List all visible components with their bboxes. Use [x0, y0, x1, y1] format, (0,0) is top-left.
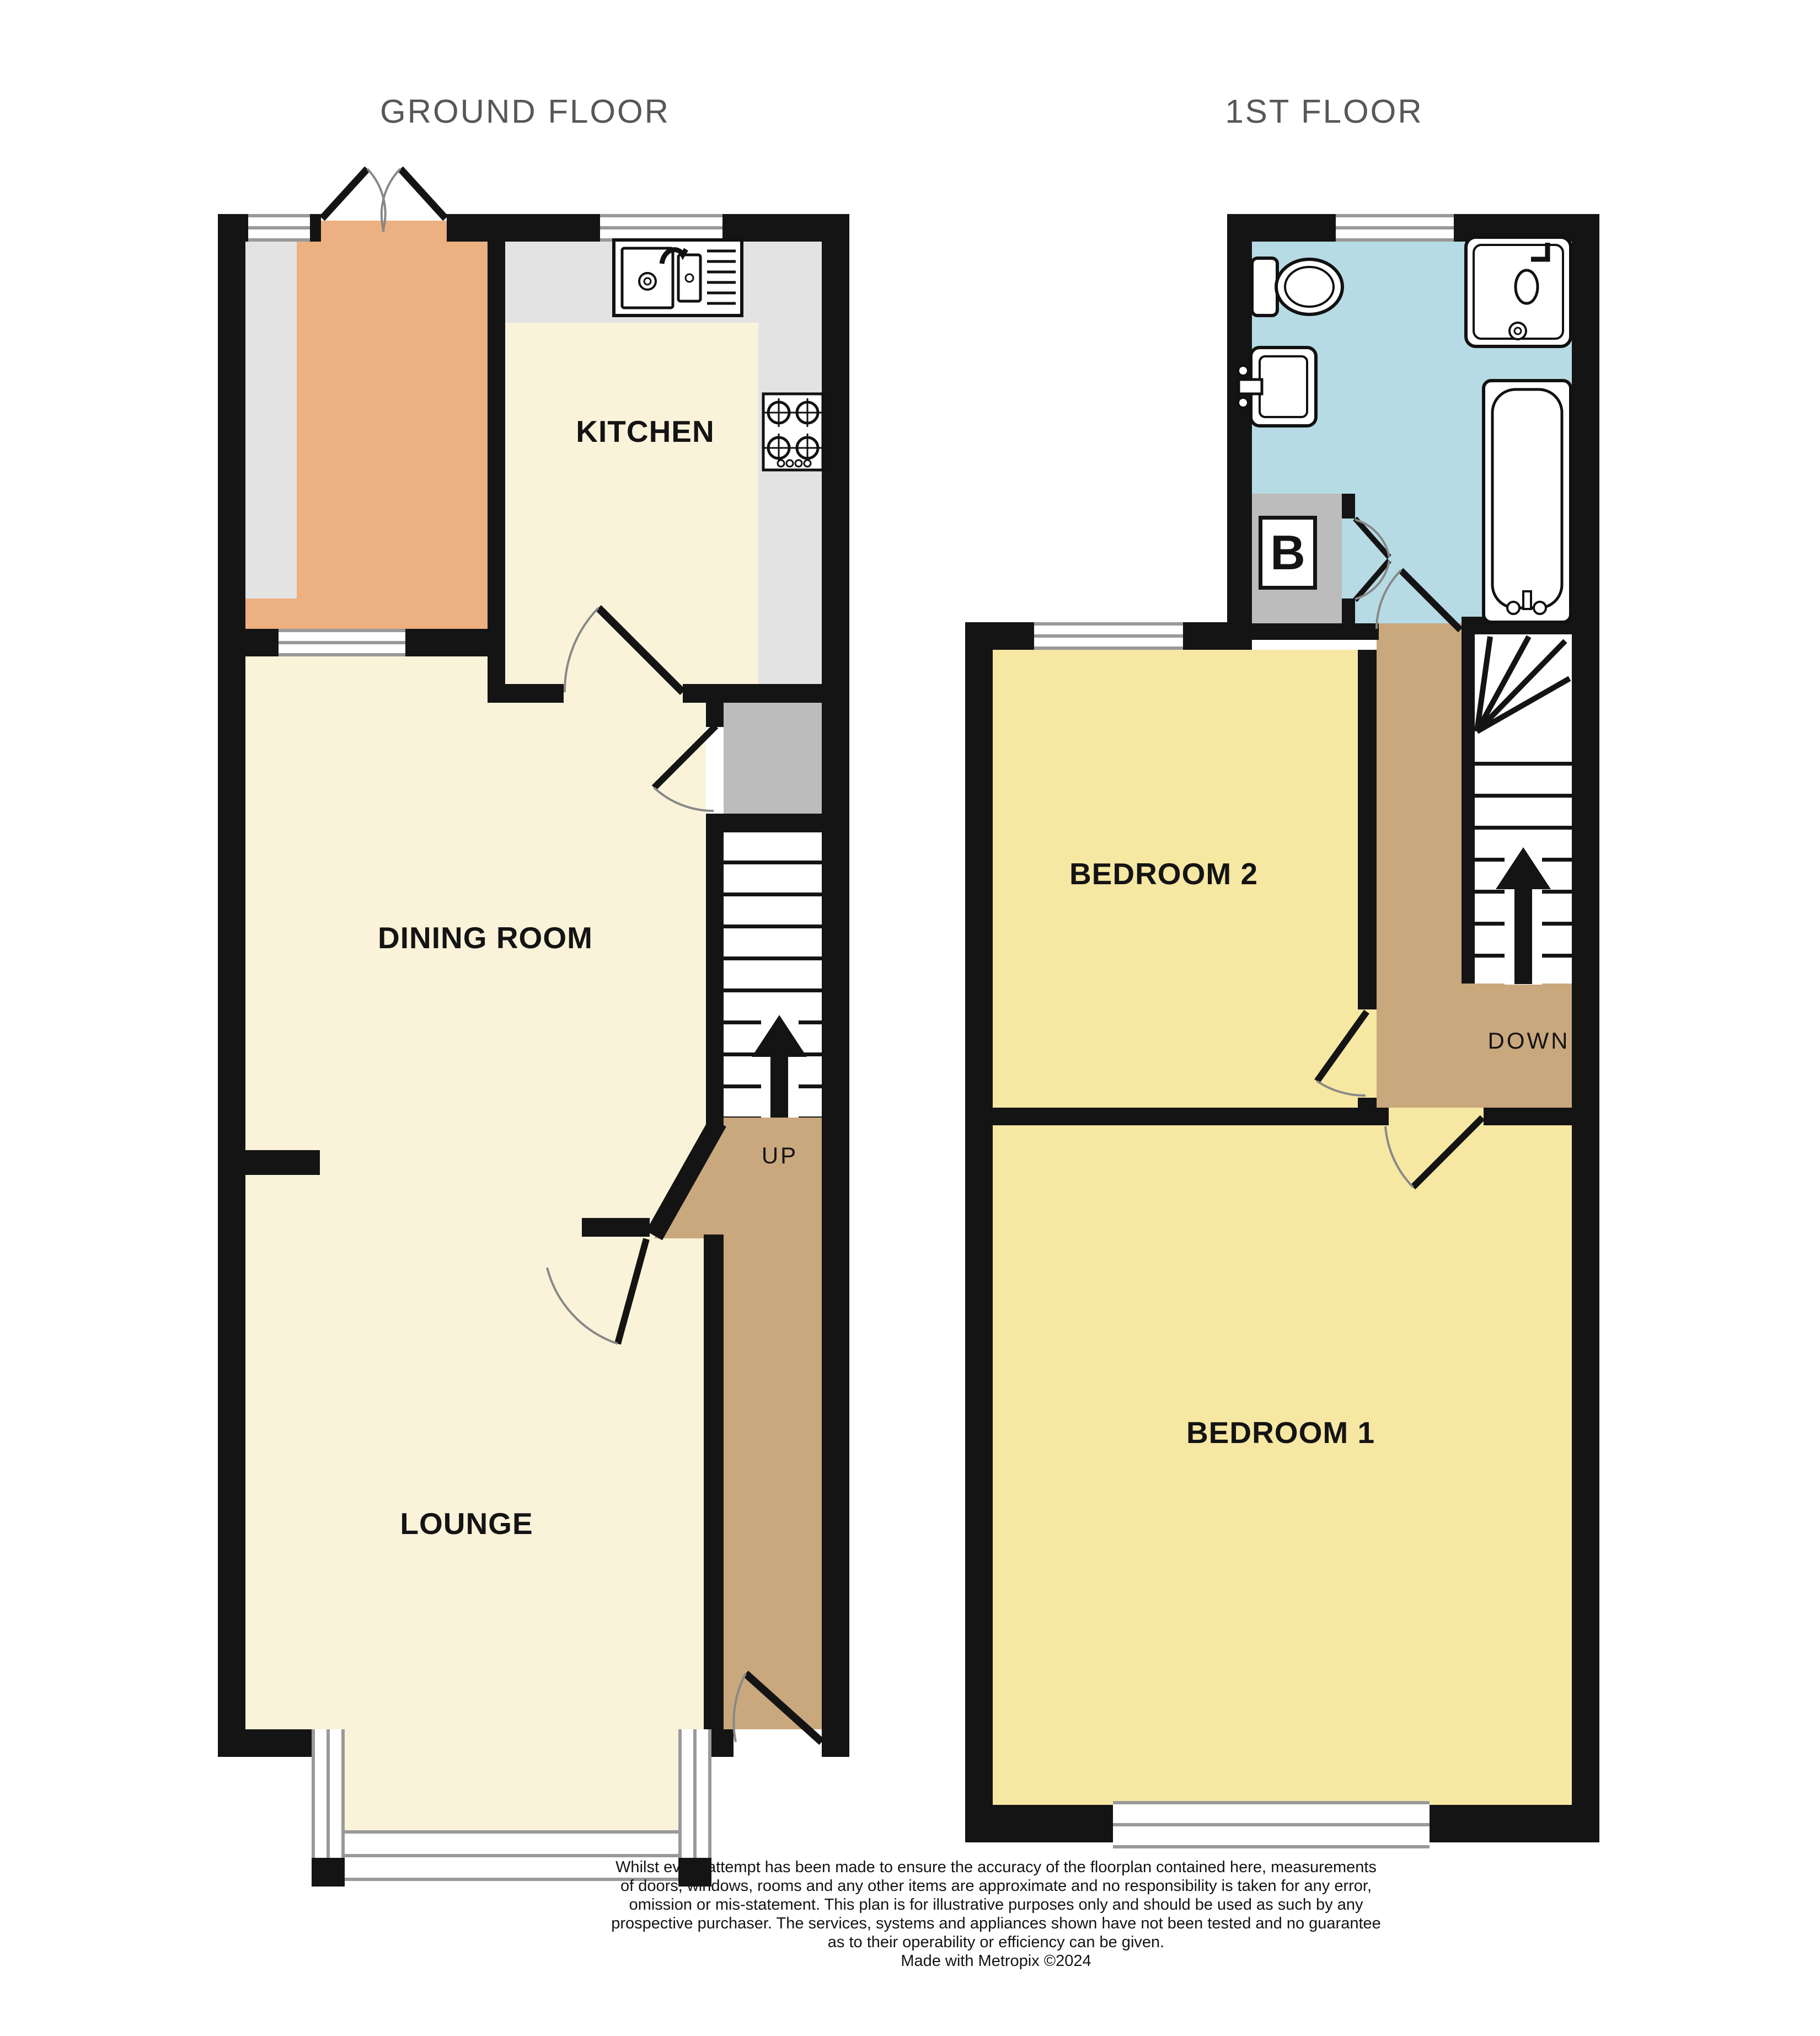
wall [582, 1218, 650, 1237]
bedroom2-doorway [1358, 1009, 1377, 1098]
down-arrow-icon [1496, 847, 1551, 889]
bay-corner [312, 1858, 345, 1887]
window [1113, 1801, 1430, 1848]
bay-window-floor [312, 1729, 678, 1831]
wall [706, 814, 822, 832]
wall [1358, 650, 1377, 1009]
disclaimer-line: prospective purchaser. The services, sys… [611, 1914, 1381, 1933]
wall [1342, 494, 1355, 519]
disclaimer-line: of doors, windows, rooms and any other i… [611, 1877, 1381, 1895]
dining-room-label: DINING ROOM [378, 920, 593, 955]
lounge-floor [245, 1175, 704, 1729]
winder-stairs-floor [1475, 634, 1572, 734]
kitchen-counter-top [505, 242, 822, 323]
disclaimer-line: Made with Metropix ©2024 [611, 1952, 1381, 1970]
boiler-badge: B [1259, 516, 1317, 590]
porch-door-threshold [321, 221, 447, 242]
bedroom1-doorway [1389, 1108, 1484, 1125]
bay-window-right-frame [678, 1729, 711, 1858]
door-swing-icon [734, 1674, 822, 1742]
wall [965, 1805, 1113, 1842]
wall [1484, 1108, 1572, 1125]
wall [822, 214, 849, 1757]
wall [1462, 617, 1572, 634]
kitchen-label: KITCHEN [576, 414, 714, 449]
lounge-label: LOUNGE [400, 1506, 533, 1541]
disclaimer-line: Whilst every attempt has been made to en… [611, 1858, 1381, 1877]
wall [1430, 1805, 1599, 1842]
window [600, 214, 722, 242]
up-arrow-icon [752, 1015, 807, 1057]
bedroom1-floor [993, 1125, 1572, 1805]
wall [683, 684, 849, 703]
bedroom2-label: BEDROOM 2 [1069, 856, 1258, 891]
down-arrow-shaft [1514, 887, 1532, 984]
up-arrow-shaft [770, 1055, 788, 1119]
landing-floor [1377, 623, 1462, 984]
understairs-cupboard-floor [724, 703, 822, 814]
porch-counter [245, 242, 297, 598]
window [248, 214, 310, 242]
wall [1342, 598, 1355, 623]
bedroom1-label: BEDROOM 1 [1186, 1415, 1375, 1450]
wall [1462, 634, 1475, 984]
wall [965, 650, 993, 1842]
window [1034, 622, 1183, 650]
wall [218, 242, 245, 1757]
disclaimer-line: omission or mis-statement. This plan is … [611, 1895, 1381, 1914]
bay-window-left-frame [312, 1729, 345, 1858]
wall [704, 1235, 724, 1729]
window [1336, 214, 1454, 242]
kitchen-floor [505, 323, 758, 703]
first-floor-title: 1ST FLOOR [1225, 93, 1423, 131]
wall [488, 242, 505, 684]
wall [706, 703, 724, 727]
down-label: DOWN [1488, 1028, 1570, 1054]
wall [1572, 214, 1599, 1842]
floorplan-canvas: GROUND FLOOR 1ST FLOOR [0, 0, 1820, 2036]
kitchen-counter-right [758, 323, 822, 684]
wall [706, 832, 724, 1126]
disclaimer-line: as to their operability or efficiency ca… [611, 1933, 1381, 1952]
wall [488, 684, 564, 703]
wall [1227, 242, 1252, 640]
wall [245, 1150, 320, 1175]
up-label: UP [762, 1142, 798, 1169]
ground-floor-title: GROUND FLOOR [380, 93, 670, 131]
wall [218, 1729, 312, 1757]
wall [965, 1108, 1389, 1125]
disclaimer-text: Whilst every attempt has been made to en… [611, 1858, 1381, 1970]
window [279, 629, 405, 656]
wall [711, 1729, 734, 1757]
